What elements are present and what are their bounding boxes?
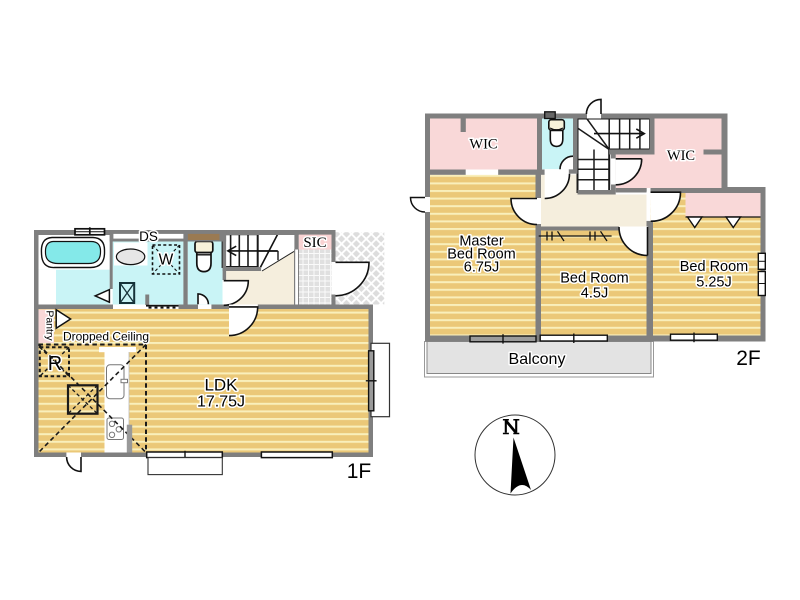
svg-text:Balcony: Balcony: [509, 351, 566, 368]
svg-text:Pantry: Pantry: [44, 310, 56, 341]
svg-text:6.75J: 6.75J: [464, 260, 499, 276]
svg-text:2F: 2F: [736, 347, 761, 370]
svg-text:Bed Room: Bed Room: [680, 259, 749, 275]
svg-text:DS: DS: [139, 229, 158, 244]
svg-text:5.25J: 5.25J: [696, 275, 731, 291]
svg-text:17.75J: 17.75J: [197, 394, 245, 411]
svg-text:Dropped Ceiling: Dropped Ceiling: [63, 330, 149, 344]
svg-text:4.5J: 4.5J: [581, 286, 608, 302]
svg-text:W: W: [159, 252, 174, 269]
svg-text:WIC: WIC: [667, 148, 695, 164]
svg-text:SIC: SIC: [303, 235, 326, 251]
svg-text:WIC: WIC: [469, 137, 497, 153]
svg-text:1F: 1F: [347, 460, 372, 483]
svg-text:Bed Room: Bed Room: [560, 271, 629, 287]
svg-text:LDK: LDK: [204, 376, 238, 395]
